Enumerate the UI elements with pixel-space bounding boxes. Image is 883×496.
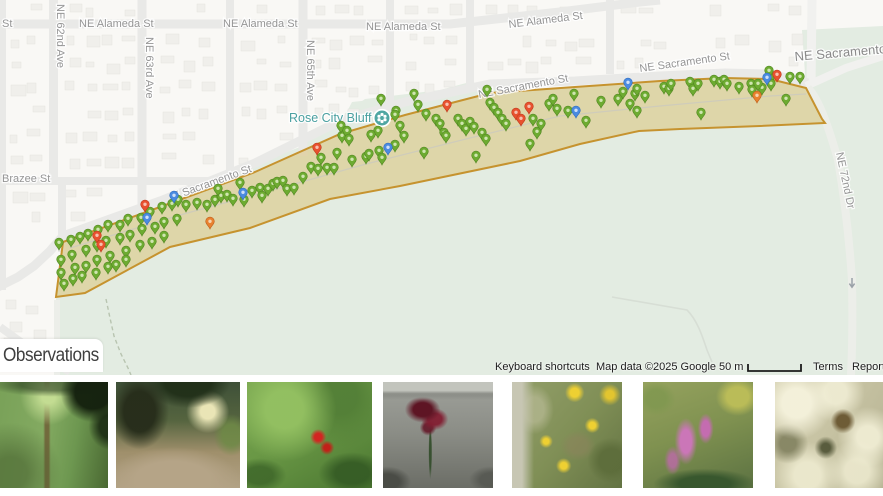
svg-text:NE Alameda St: NE Alameda St	[79, 18, 154, 30]
svg-text:NE 65th Ave: NE 65th Ave	[304, 40, 316, 101]
svg-text:Rose City Bluff: Rose City Bluff	[289, 111, 372, 125]
svg-text:St: St	[2, 18, 12, 30]
svg-text:NE 63rd Ave: NE 63rd Ave	[143, 37, 155, 99]
svg-text:NE 62nd Ave: NE 62nd Ave	[54, 4, 66, 68]
svg-text:Brazee St: Brazee St	[2, 173, 50, 185]
svg-text:NE Alameda St: NE Alameda St	[223, 18, 298, 30]
svg-text:NE Alameda St: NE Alameda St	[366, 21, 441, 33]
